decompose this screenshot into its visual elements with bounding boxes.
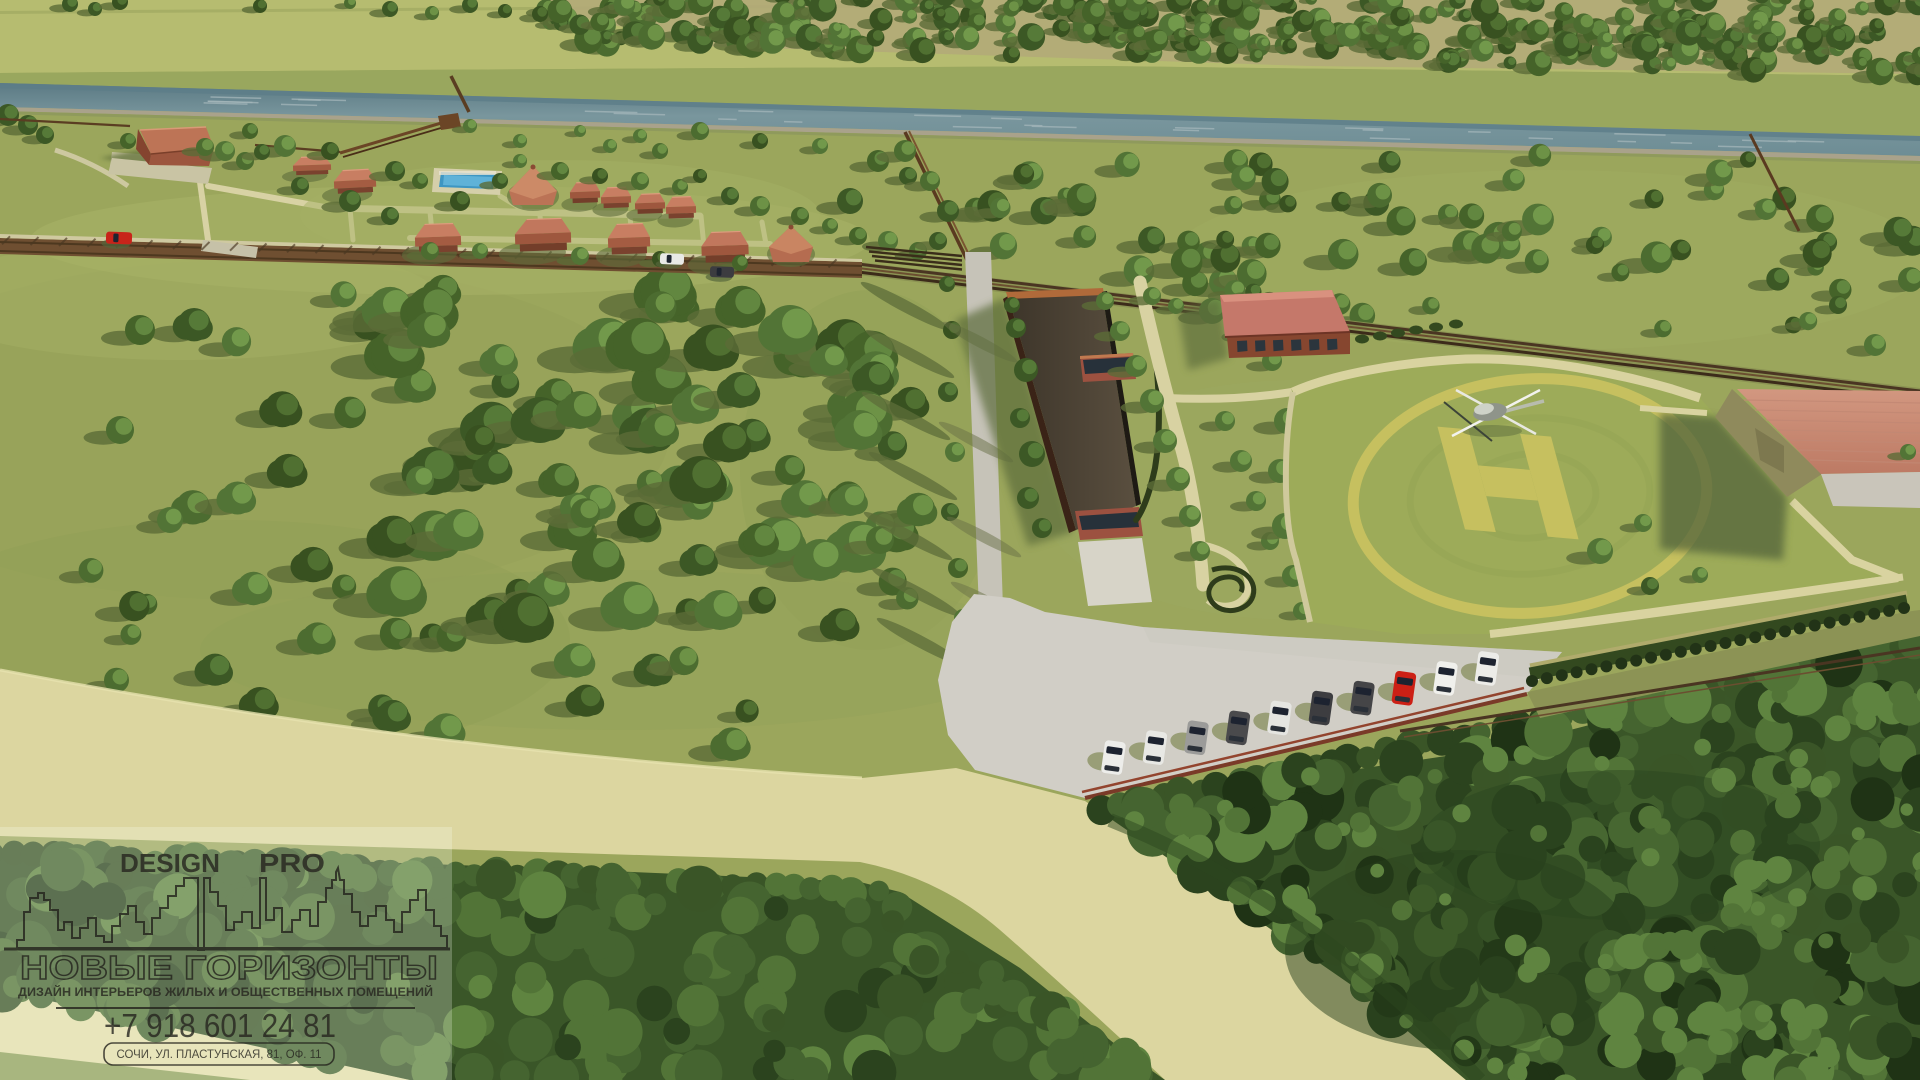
svg-text:+7 918 601 24 81: +7 918 601 24 81 [104,1007,336,1044]
svg-text:PRO: PRO [259,848,325,878]
svg-text:НОВЫЕ ГОРИЗОНТЫ: НОВЫЕ ГОРИЗОНТЫ [20,949,438,986]
svg-text:СОЧИ, УЛ. ПЛАСТУНСКАЯ, 81, ОФ.: СОЧИ, УЛ. ПЛАСТУНСКАЯ, 81, ОФ. 11 [117,1049,322,1061]
svg-text:ДИЗАЙН ИНТЕРЬЕРОВ ЖИЛЫХ И ОБЩЕ: ДИЗАЙН ИНТЕРЬЕРОВ ЖИЛЫХ И ОБЩЕСТВЕННЫХ П… [18,986,433,999]
svg-text:DESIGN: DESIGN [120,848,220,878]
